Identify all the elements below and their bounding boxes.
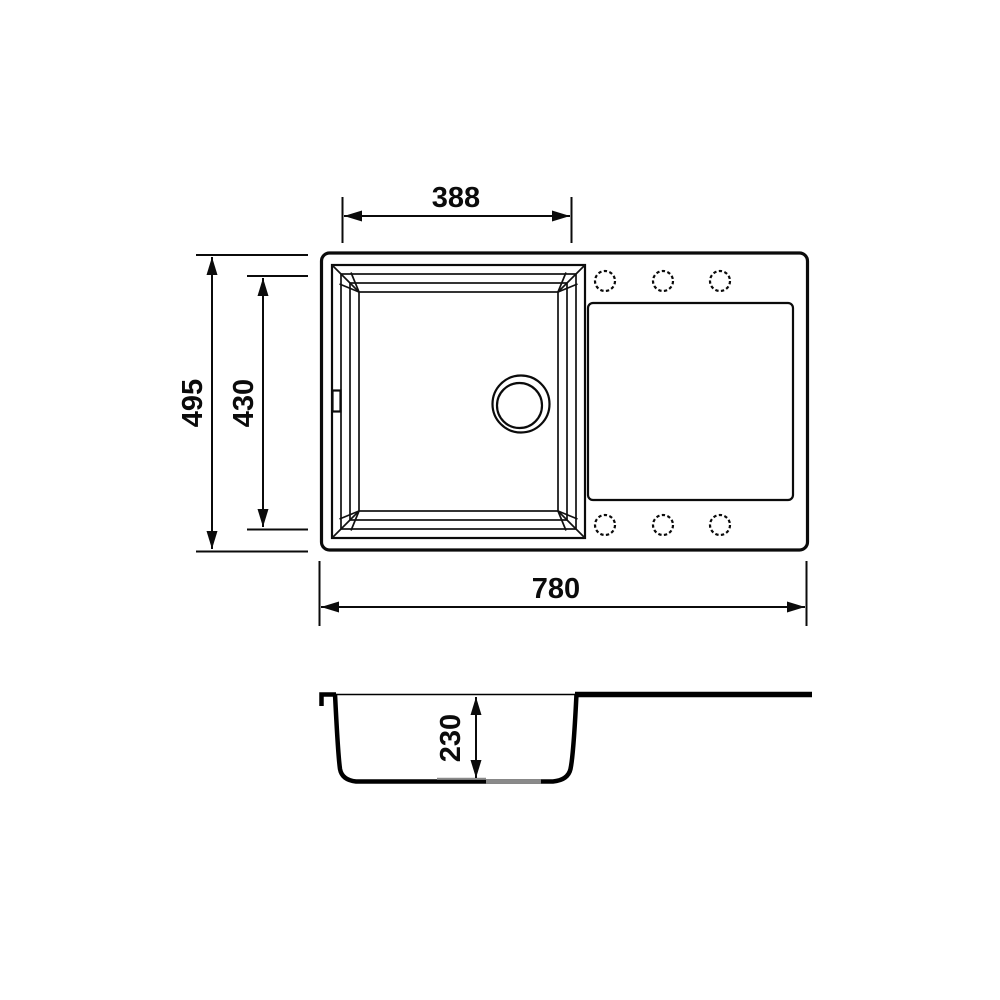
drainboard-outline — [588, 303, 793, 500]
dimension-basin-inner-depth: 430 — [228, 276, 308, 530]
dimension-bowl-depth: 230 — [435, 697, 476, 778]
top-view — [322, 253, 808, 550]
faucet-hole-markers — [595, 271, 730, 535]
basin-frame — [332, 265, 585, 538]
dim-label-230: 230 — [435, 714, 467, 762]
dim-label-780: 780 — [532, 573, 580, 605]
overflow-slot — [333, 391, 341, 412]
basin-corner-bevels — [332, 265, 585, 538]
sink-body-outline — [322, 253, 808, 550]
drain-hole — [493, 376, 550, 433]
dimension-overall-width: 780 — [320, 561, 807, 626]
dimension-basin-width: 388 — [343, 182, 572, 243]
dim-label-430: 430 — [228, 379, 260, 427]
dim-label-495: 495 — [177, 379, 209, 427]
sink-technical-drawing: 388 495 430 780 — [0, 0, 1000, 1000]
technical-drawing-page: 388 495 430 780 — [0, 0, 1000, 1000]
side-view: 230 — [322, 694, 813, 782]
dim-label-388: 388 — [432, 182, 480, 214]
